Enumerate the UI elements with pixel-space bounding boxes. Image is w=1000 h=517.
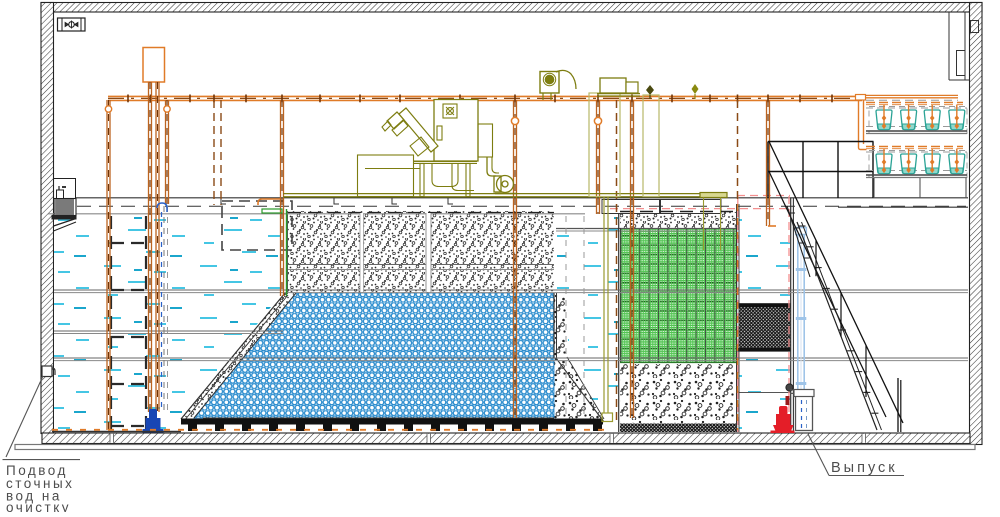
svg-text:очистку: очистку [6,500,71,512]
svg-text:Выпуск: Выпуск [831,460,898,476]
